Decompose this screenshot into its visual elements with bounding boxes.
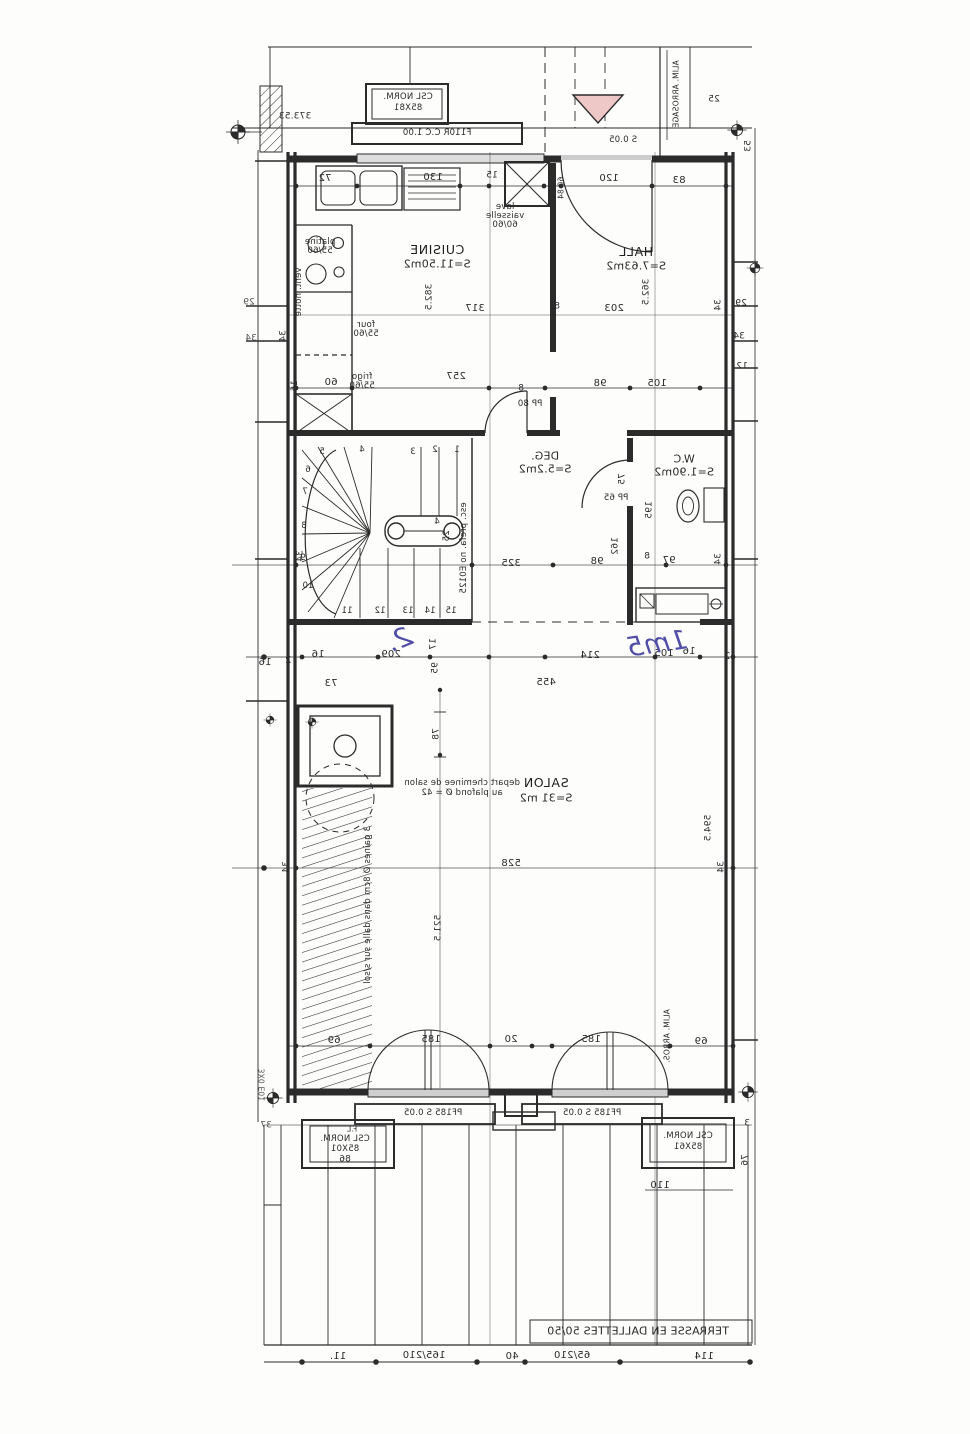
step-1: 1 xyxy=(454,446,460,455)
frigo-label-2: 55/60 xyxy=(349,382,375,391)
room-wc: W.C xyxy=(673,454,694,465)
dim-20: 20 xyxy=(504,1035,517,1045)
room-salon-area: S=31 m2 xyxy=(520,793,573,804)
floorplan-scan: CSL NORM. 85X81 F110R C.C 1.00 S 0.05 AL… xyxy=(0,0,970,1434)
dim-455: 455 xyxy=(536,678,556,688)
dim-214: 214 xyxy=(580,651,600,661)
handwritten-1m5: 1m5 xyxy=(625,626,689,661)
dim-69b: 69 xyxy=(694,1037,707,1047)
gaines-note: 3 gaines Ø 8cm dans dalle sur s/sol xyxy=(364,826,373,984)
dim-195: 195 xyxy=(646,501,655,519)
step-14: 14 xyxy=(424,607,435,616)
csl-bl-label: CSL NORM. xyxy=(320,1135,370,1144)
csl-br-size: 85X61 xyxy=(674,1143,702,1152)
mark-3x0: 3X0 E01 xyxy=(258,1069,266,1102)
dim-16k: 16 xyxy=(291,380,300,391)
dim-75: 75 xyxy=(619,473,628,485)
fl-label: F.L xyxy=(347,1125,357,1133)
step-13: 13 xyxy=(402,607,413,616)
dim-78: 78 xyxy=(433,728,442,740)
dim-165-210: 165/210 xyxy=(403,1351,446,1361)
step-11: 11 xyxy=(341,607,352,616)
stair-dim-25: 25 xyxy=(443,530,452,541)
stair-note: esc. prefa. no E0125 xyxy=(460,502,469,594)
elevation-label: 373.53 xyxy=(279,113,312,122)
dim-73: 73 xyxy=(324,679,337,689)
step-7: 7 xyxy=(302,488,308,497)
dim-34-r2: 34 xyxy=(733,333,745,342)
dim-594: 594.5 xyxy=(705,815,714,842)
dim-382: 382.5 xyxy=(426,284,435,311)
four-label-2: 55/60 xyxy=(353,330,379,339)
dim-34-l2: 34 xyxy=(245,335,257,344)
dim-2b: 2 xyxy=(285,656,292,666)
dim-95: 95 xyxy=(432,662,441,674)
dim-5215: 521.5 xyxy=(435,915,444,942)
dim-8e: 8 xyxy=(644,553,650,562)
room-cuisine-area: S=11.50m2 xyxy=(403,259,470,270)
csl-top-size: 85X81 xyxy=(394,104,422,113)
dim-34-l1: 34 xyxy=(280,330,289,342)
dim-60-84: 60 84 xyxy=(557,177,565,199)
room-hall-area: S=7.63m2 xyxy=(606,261,666,272)
dim-53: 53 xyxy=(745,140,754,152)
dim-76: 76 xyxy=(742,1154,751,1166)
dim-203: 203 xyxy=(604,304,624,314)
lave-label-3: 60/60 xyxy=(492,221,518,230)
step-12: 12 xyxy=(374,607,385,616)
seuil-label: S 0.05 xyxy=(609,136,637,145)
dim-29-l: 29 xyxy=(243,299,255,308)
dim-98b: 98 xyxy=(590,557,603,567)
dim-65-210: 65/210 xyxy=(554,1351,590,1361)
cheminee-note-1: depart cheminee de salon xyxy=(404,779,520,788)
dim-16c: 16 xyxy=(258,658,271,668)
window-f110-label: F110R C.C 1.00 xyxy=(403,129,472,138)
dim-110: 110 xyxy=(650,1181,670,1191)
dim-257: 257 xyxy=(446,372,466,382)
dim-8c: 8 xyxy=(518,385,524,394)
step-5: 5 xyxy=(319,448,325,457)
dim-120: 120 xyxy=(599,174,619,184)
platine-label-2: 55/60 xyxy=(307,247,333,256)
dim-72: 72 xyxy=(318,174,331,184)
alim-arros-label: ALIM. ARROS. xyxy=(663,1009,671,1063)
csl-br-label: CSL NORM. xyxy=(663,1132,713,1141)
dim-37: 37 xyxy=(260,1122,272,1131)
stair-dim-4: 4 xyxy=(434,518,440,527)
dim-362: 362.5 xyxy=(643,279,652,306)
terrace-label: TERRASSE EN DALLETTES 50/50 xyxy=(547,1326,729,1337)
dim-3: 3 xyxy=(744,1120,750,1129)
pf185-left: PF185 S 0.05 xyxy=(404,1109,462,1118)
dim-130: 130 xyxy=(423,173,443,183)
dim-105a: 105 xyxy=(647,379,667,389)
dim-528: 528 xyxy=(501,859,521,869)
room-wc-area: S=1.90m2 xyxy=(654,467,714,478)
step-2: 2 xyxy=(432,446,438,455)
step-6: 6 xyxy=(305,466,311,475)
dim-97: 97 xyxy=(662,556,675,566)
dim-8b: 8 xyxy=(554,303,560,312)
dim-34-r3: 34 xyxy=(715,553,724,565)
dim-29-r: 29 xyxy=(735,300,747,309)
dim-34-r1: 34 xyxy=(715,299,724,311)
csl-bl-size: 85X01 xyxy=(331,1145,359,1154)
dim-60: 60 xyxy=(324,378,337,388)
dim-2a: 2 xyxy=(724,652,731,662)
dim-162: 162 xyxy=(612,537,621,555)
dim-325: 325 xyxy=(501,559,521,569)
step-3: 3 xyxy=(410,448,416,457)
dim-15: 15 xyxy=(486,172,498,181)
dim-86: 86 xyxy=(339,1156,351,1165)
dim-114: 114 xyxy=(694,1352,714,1362)
dim-8: 8 xyxy=(548,167,554,176)
pp80-label: PP 80 xyxy=(518,400,543,409)
dim-185a: 185 xyxy=(421,1035,441,1045)
room-salon: SALON xyxy=(523,777,568,790)
room-hall: HALL xyxy=(619,246,653,259)
cheminee-note-2: au plafond Ø = 42 xyxy=(421,789,502,798)
alim-arrosage-label: ALIM. ARROSAGE xyxy=(672,60,680,127)
dim-83: 83 xyxy=(672,176,685,186)
csl-top-label: CSL NORM. xyxy=(383,93,433,102)
dim-185b: 185 xyxy=(581,1035,601,1045)
dim-17: 17 xyxy=(430,638,439,650)
dim-34-r4: 34 xyxy=(718,861,727,873)
dim-317: 317 xyxy=(465,304,485,314)
dim-11: 11. xyxy=(330,1352,347,1362)
dim-34-l3: 34 xyxy=(297,550,306,562)
step-4: 4 xyxy=(359,446,365,455)
dim-69a: 69 xyxy=(327,1036,340,1046)
pp65-label: PP 65 xyxy=(604,494,629,503)
step-8: 8 xyxy=(301,522,307,531)
dim-40: 40 xyxy=(505,1352,518,1362)
vent-hotte-label: vent. hotte xyxy=(295,267,304,316)
room-deg-area: S=5.2m2 xyxy=(519,464,572,475)
dim-98a: 98 xyxy=(593,379,606,389)
room-cuisine: CUISINE xyxy=(410,244,465,257)
dim-34-l4: 34 xyxy=(283,861,292,873)
pf185-right: PF185 S 0.05 xyxy=(563,1109,621,1118)
step-10: 10 xyxy=(302,582,313,591)
room-deg: DEG. xyxy=(531,451,559,462)
dim-16a: 16 xyxy=(311,650,324,660)
step-15: 15 xyxy=(445,607,456,616)
dim-25: 25 xyxy=(708,96,720,105)
dim-12-r: 12 xyxy=(736,363,748,372)
